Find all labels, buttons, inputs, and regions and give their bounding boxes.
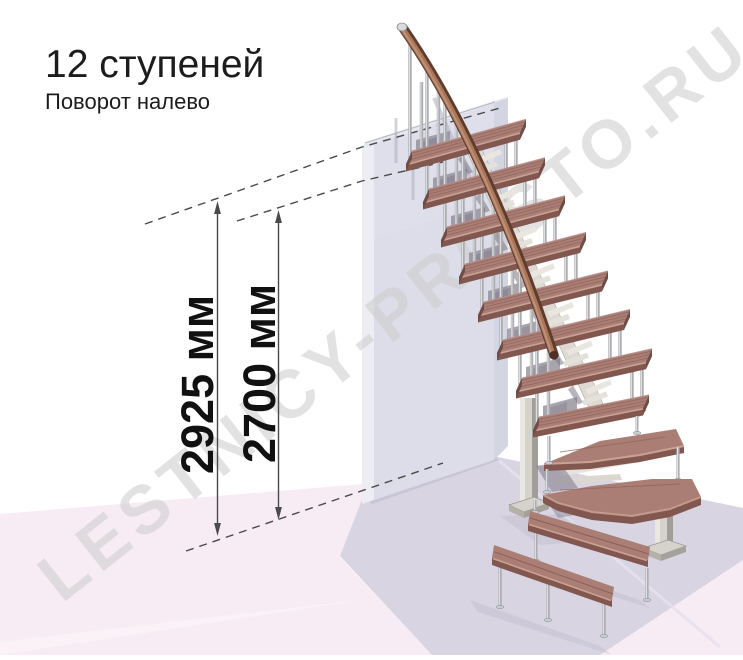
svg-text:2700 мм: 2700 мм bbox=[234, 284, 285, 463]
svg-text:12 ступеней: 12 ступеней bbox=[45, 43, 264, 86]
svg-text:Поворот налево: Поворот налево bbox=[45, 89, 210, 114]
svg-text:2925 мм: 2925 мм bbox=[172, 295, 223, 474]
